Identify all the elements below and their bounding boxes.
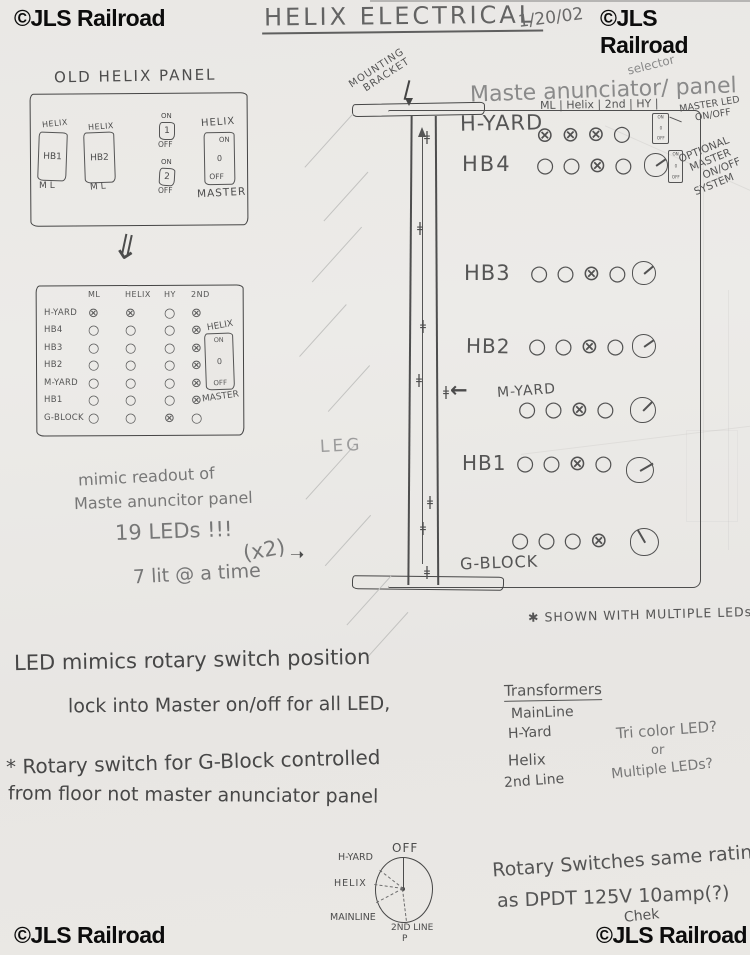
connector-icon: ǂ	[424, 566, 430, 579]
hb1-bottom-label: ML	[39, 181, 58, 191]
connector-icon: ǂ	[417, 222, 423, 235]
panel-row-leds: ○○⊗○	[530, 263, 635, 284]
master-led-on: ON	[657, 116, 663, 120]
title-caret: /	[661, 76, 669, 101]
connector-icon: ǂ	[416, 374, 422, 387]
mimic-led: ○	[164, 325, 191, 343]
led-question-line3: Multiple LEDs?	[610, 756, 713, 783]
switch1-number: 1	[164, 126, 170, 136]
rotary-dial	[644, 153, 668, 177]
connector-icon: ǂ	[424, 131, 430, 144]
hb2-bottom-label: ML	[90, 181, 110, 193]
transformer-item: MainLine	[511, 704, 574, 722]
panel-row-label: H-YARD	[460, 110, 544, 135]
mini-switch-mid: 0	[674, 164, 677, 168]
hb1-name: HB1	[43, 151, 62, 162]
mimic-led: ○	[88, 413, 125, 431]
panel-footnote: ✱ SHOWN WITH MULTIPLE LEDs	[528, 604, 750, 625]
rotary-dial	[630, 397, 656, 423]
mounting-bracket-label: MOUNTING BRACKET	[347, 46, 412, 99]
hb2-toggle: HB2	[83, 131, 116, 183]
hb2-top-label: HELIX	[88, 121, 114, 132]
rotary-dial	[632, 334, 656, 358]
master-switch-box: ON 0 OFF	[204, 132, 236, 186]
mimic-note-line2: Maste anuncitor panel	[74, 488, 253, 513]
panel-columns-header: ML | Helix | 2nd | HY |	[540, 97, 659, 112]
led-question-line1: Tri color LED?	[615, 717, 717, 742]
switch2-number: 2	[164, 172, 170, 182]
mimic-led: ○	[125, 360, 164, 378]
panel-row-leds: ○○○⊗	[511, 530, 616, 551]
mimic-note-line1: mimic readout of	[78, 463, 215, 489]
rotary-label-off: OFF	[392, 841, 418, 855]
mimic-led: ○	[125, 325, 164, 343]
mimic-master-box: ON 0 OFF	[204, 333, 235, 391]
double-down-arrow-icon: ⇓	[108, 225, 144, 270]
hatch-line	[328, 365, 370, 412]
mimic-master-on: ON	[214, 336, 224, 344]
connector-icon: ǂ	[427, 496, 433, 509]
leg-arrow-line	[422, 136, 423, 564]
master-led-switch: ON 0 OFF	[652, 113, 669, 144]
transformers-title: Transformers	[504, 680, 602, 702]
transformer-item: 2nd Line	[504, 771, 565, 791]
master-switch-on: ON	[219, 136, 234, 144]
mimic-led: ○	[164, 395, 191, 413]
rotary-label-mainline: MAINLINE	[330, 912, 376, 923]
watermark-top-left: ©JLS Railroad	[14, 5, 165, 32]
switch2-box: 2	[159, 168, 176, 187]
mimic-note-line3: 19 LEDs !!!	[115, 517, 233, 545]
rotary-dial	[632, 261, 656, 285]
mimic-col-hy: HY	[164, 290, 191, 308]
mini-switch-off: OFF	[672, 176, 680, 180]
connector-icon: ǂ	[420, 320, 426, 333]
m-yard-arrow-icon: ←	[450, 378, 468, 402]
panel-row-leds: ○○⊗○	[518, 399, 623, 420]
right-arrow-icon: ➝	[290, 545, 304, 565]
bleed-through-mark	[728, 290, 729, 550]
rotary-label-hyard: H-YARD	[338, 852, 373, 863]
mimic-led: ○	[88, 325, 125, 343]
watermark-top-right: ©JLS Railroad	[600, 5, 750, 59]
master-switch-bottom-label: MASTER	[197, 186, 247, 201]
mimic-row-label: HB1	[38, 395, 88, 413]
hatch-line	[299, 304, 347, 357]
mimic-row-label: H-YARD	[38, 308, 88, 326]
mimic-row-label: HB2	[38, 360, 88, 378]
switch1-on-label: ON	[161, 112, 172, 120]
transformer-item: H-Yard	[508, 724, 552, 742]
note-rotary-gblock: * Rotary switch for G-Block controlled	[6, 745, 381, 779]
panel-row-label: G-BLOCK	[460, 552, 539, 574]
rotary-pointer-off	[403, 858, 404, 889]
rotary-dial	[630, 528, 659, 556]
scanned-sketch-page: ©JLS Railroad ©JLS Railroad ©JLS Railroa…	[0, 0, 750, 955]
watermark-bottom-right: ©JLS Railroad	[596, 922, 747, 949]
hatch-line	[304, 113, 353, 167]
mimic-led: ○	[191, 413, 223, 431]
mimic-row-label: HB3	[38, 343, 88, 361]
mimic-col-ml: ML	[88, 290, 125, 308]
connector-icon: ǂ	[443, 386, 449, 399]
note-lock-into: lock into Master on/off for all LED,	[68, 693, 390, 718]
rotary-label-p: P	[402, 934, 407, 944]
mimic-row-label: G-BLOCK	[38, 413, 88, 431]
mimic-led: ○	[125, 413, 164, 431]
master-led-mid: 0	[659, 126, 662, 130]
hb2-name: HB2	[90, 152, 109, 163]
panel-row-label: HB2	[466, 334, 511, 359]
switch2-off-label: OFF	[158, 186, 173, 195]
rotary-label-helix: HELIX	[334, 878, 367, 889]
mimic-col-2nd: 2ND	[191, 290, 223, 308]
panel-row-leds: ⊗⊗⊗○	[536, 123, 639, 146]
mimic-led: ○	[164, 360, 191, 378]
hatch-line	[325, 515, 371, 566]
hatch-line	[323, 172, 368, 222]
panel-row-leds: ○○⊗○	[536, 155, 641, 176]
panel-row-leds: ○○⊗○	[528, 336, 633, 357]
mimic-master-mid: 0	[217, 357, 222, 366]
panel-row-label: HB4	[462, 152, 512, 176]
mimic-master-off: OFF	[213, 379, 227, 387]
switch2-on-label: ON	[161, 158, 172, 166]
master-led-off: OFF	[657, 137, 665, 141]
connector-icon: ǂ	[420, 522, 426, 535]
mimic-row-label: HB4	[38, 325, 88, 343]
note-from-floor: from floor not master anunciator panel	[8, 782, 378, 807]
mounting-arrow	[404, 80, 410, 100]
mimic-led: ○	[125, 395, 164, 413]
mimic-note-line4: 7 lit @ a time	[133, 560, 262, 589]
switch1-off-label: OFF	[158, 140, 173, 149]
master-switch-off: OFF	[205, 172, 224, 181]
led-question-line2: or	[651, 743, 664, 758]
watermark-bottom-left: ©JLS Railroad	[14, 922, 165, 949]
rotary-label-2ndline: 2ND LINE	[391, 923, 433, 933]
hatch-line	[367, 612, 408, 657]
rotary-note-line2: as DPDT 125V 10amp(?)	[497, 882, 730, 912]
switch1-box: 1	[159, 122, 175, 140]
panel-row-label: HB3	[464, 261, 511, 285]
mimic-row-label: M-YARD	[38, 378, 88, 396]
hatch-line	[312, 227, 362, 283]
master-switch-mid: 0	[217, 153, 222, 162]
old-panel-label: OLD HELIX PANEL	[54, 66, 217, 87]
mimic-led: ○	[88, 360, 125, 378]
panel-row-leds: ○○⊗○	[516, 453, 621, 474]
mimic-led: ○	[88, 395, 125, 413]
transformer-item: Helix	[508, 750, 546, 769]
note-led-mimics: LED mimics rotary switch position	[14, 645, 371, 675]
mimic-col-helix: HELIX	[125, 290, 164, 308]
page-title: HELIX ELECTRICAL	[262, 1, 543, 35]
rotary-dial	[626, 457, 654, 483]
rotary-note-line1: Rotary Switches same rating	[492, 841, 750, 882]
panel-row-label: HB1	[462, 451, 506, 475]
leg-label: LEG	[320, 435, 363, 457]
hb1-toggle: HB1	[37, 132, 68, 182]
mimic-led: ⊗	[164, 413, 191, 431]
